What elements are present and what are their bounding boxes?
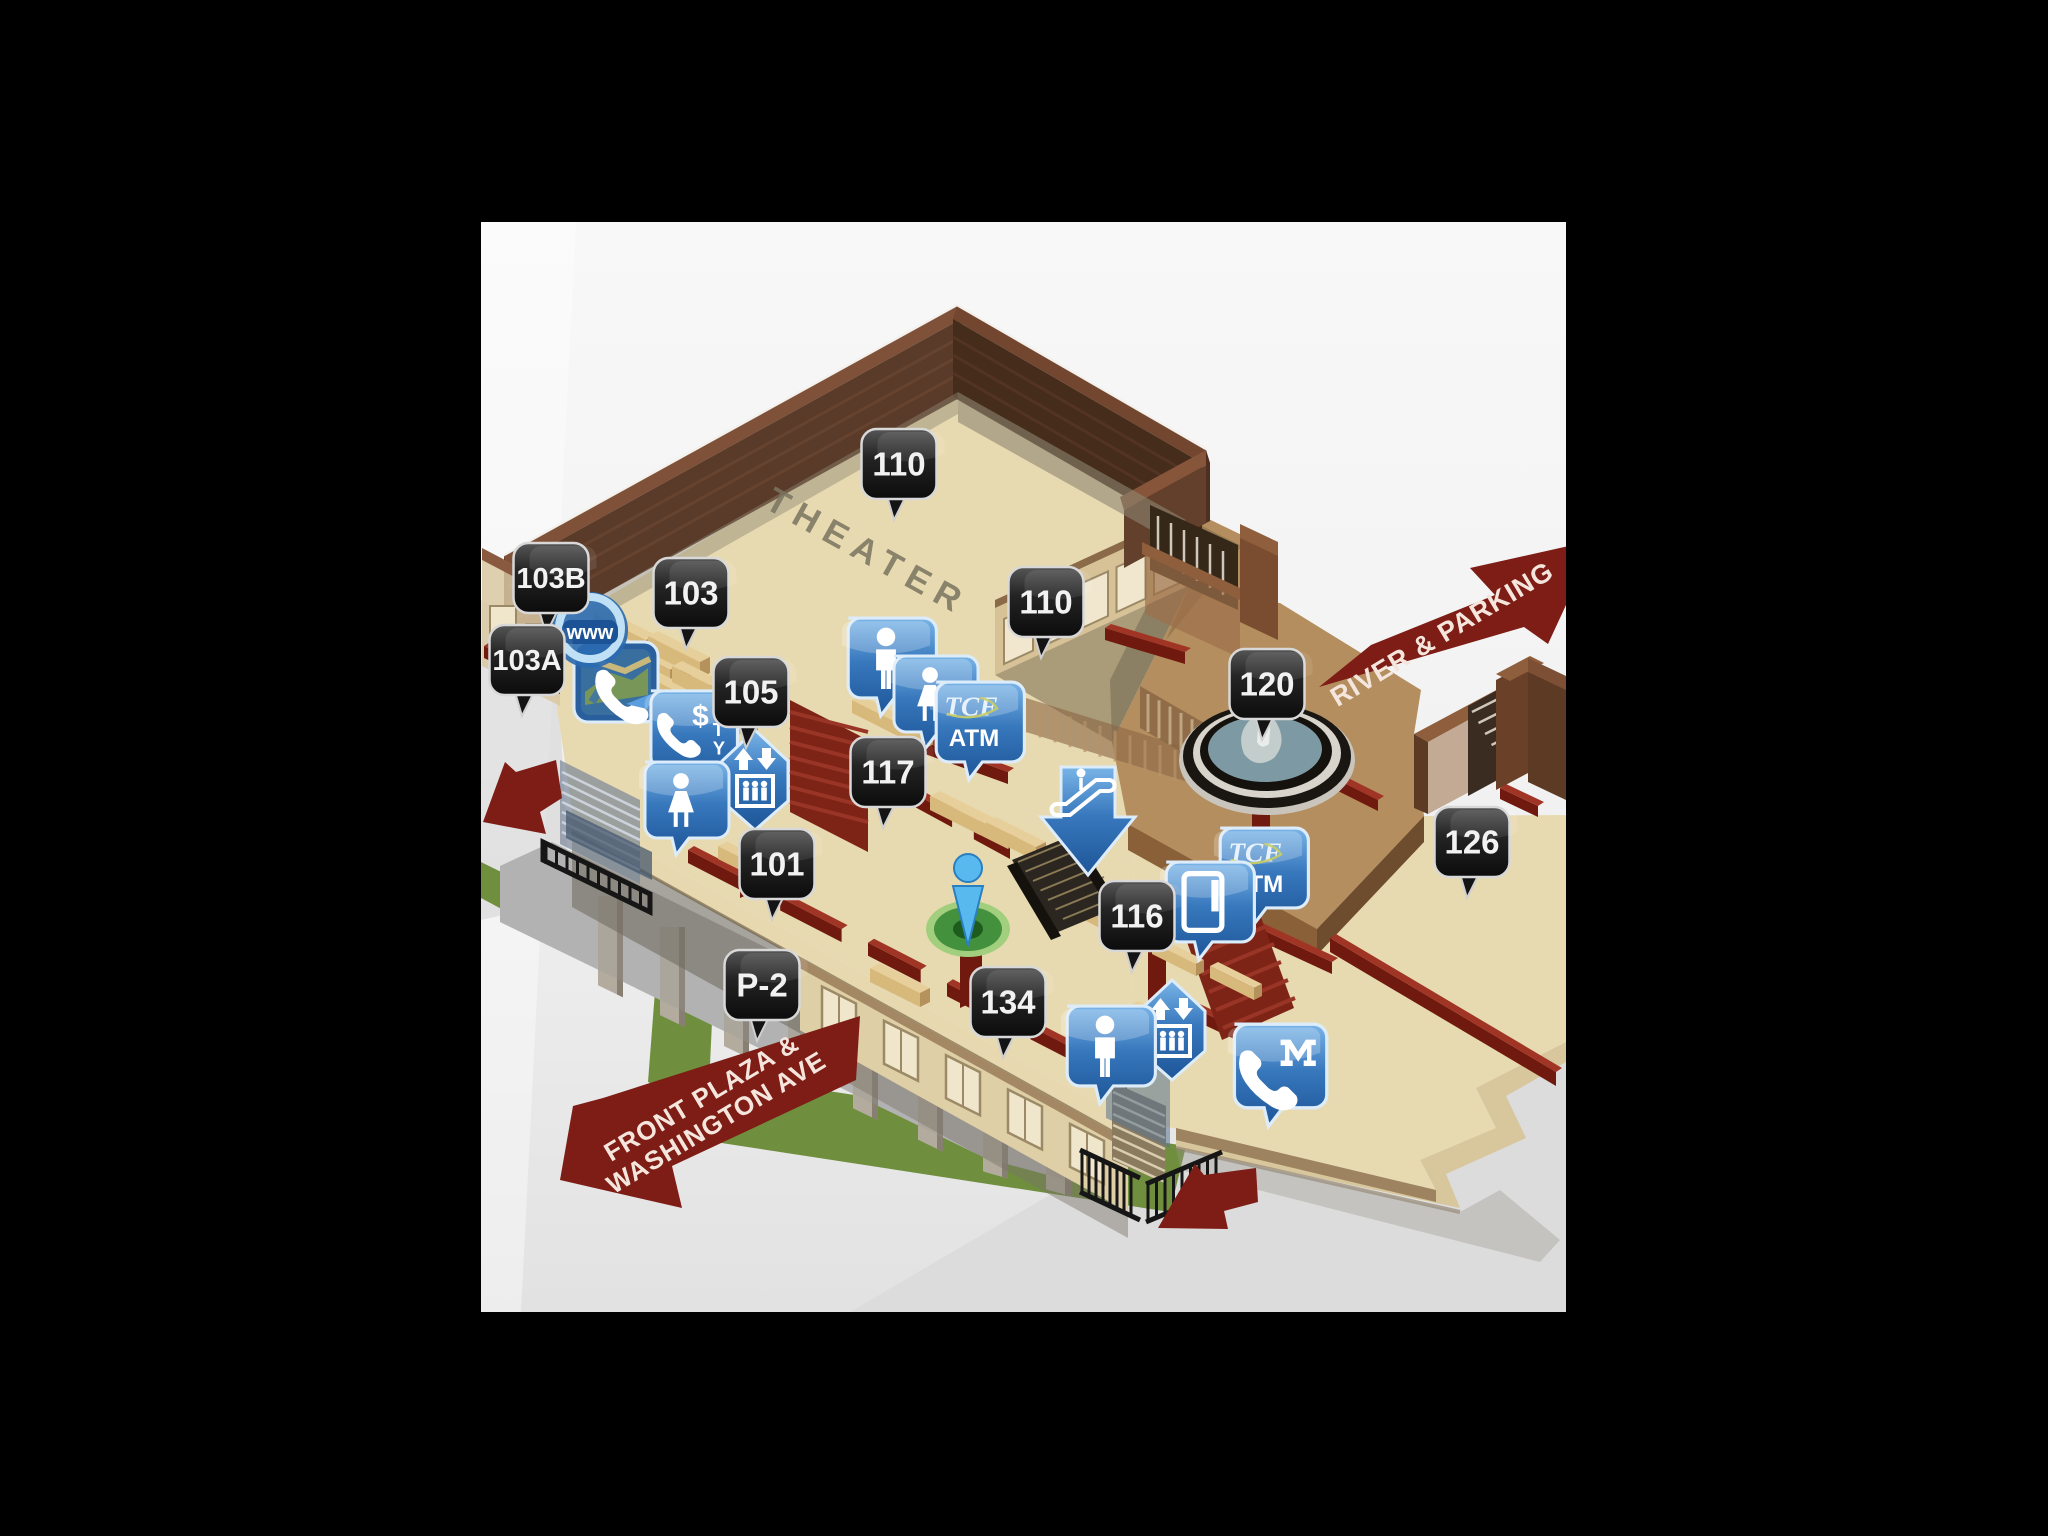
svg-text:126: 126 [1444,824,1499,861]
svg-text:Y: Y [713,738,726,759]
svg-text:101: 101 [749,846,804,883]
svg-text:ATM: ATM [949,725,1000,752]
svg-text:120: 120 [1239,666,1294,703]
svg-text:103A: 103A [492,645,561,677]
svg-text:P-2: P-2 [736,967,787,1004]
svg-text:www: www [566,622,614,644]
svg-text:105: 105 [723,674,778,711]
svg-text:116: 116 [1110,898,1163,935]
svg-text:103: 103 [663,575,718,612]
svg-text:110: 110 [872,446,925,483]
svg-text:$: $ [692,700,709,733]
svg-text:110: 110 [1019,584,1072,621]
svg-text:134: 134 [980,984,1036,1021]
svg-text:117: 117 [861,754,914,791]
svg-text:103B: 103B [516,563,585,595]
